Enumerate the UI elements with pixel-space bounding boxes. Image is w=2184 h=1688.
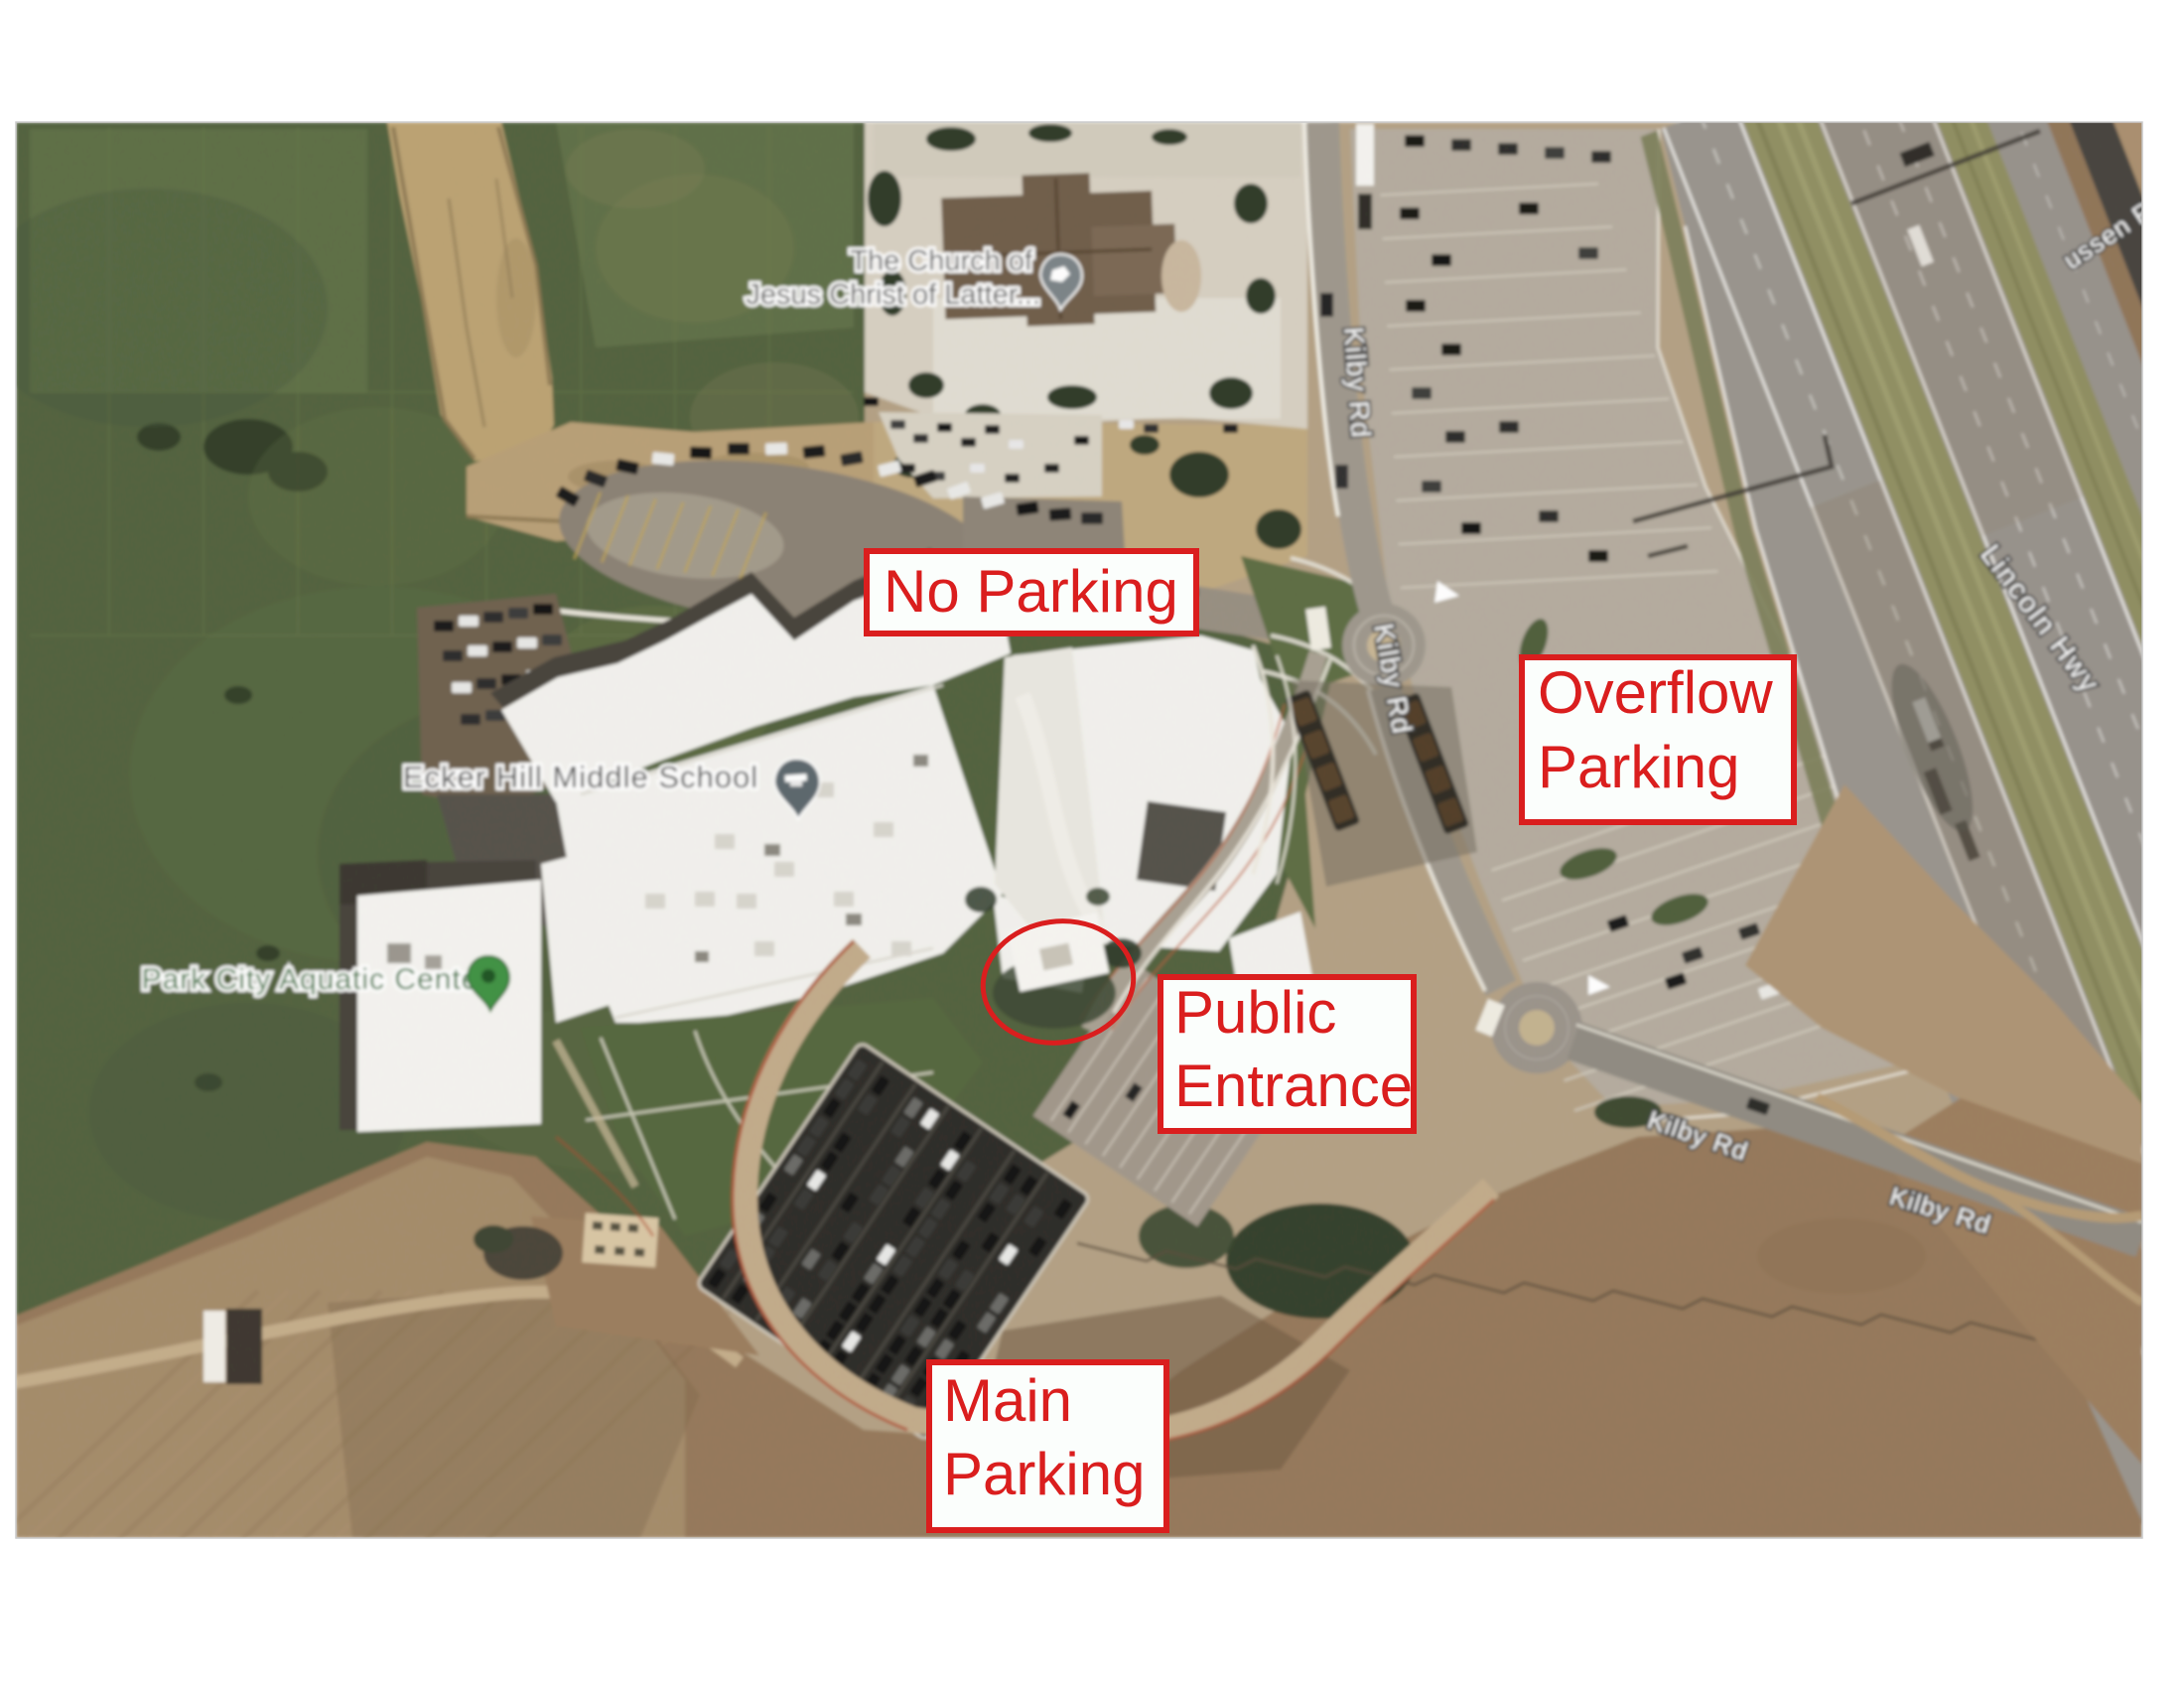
svg-text:Entrance: Entrance xyxy=(1174,1053,1413,1119)
svg-text:No Parking: No Parking xyxy=(884,558,1178,625)
svg-text:Parking: Parking xyxy=(1538,734,1739,800)
svg-text:Public: Public xyxy=(1174,979,1336,1046)
svg-text:Overflow: Overflow xyxy=(1538,659,1773,726)
svg-text:Parking: Parking xyxy=(943,1441,1145,1507)
svg-text:Main: Main xyxy=(943,1367,1072,1434)
